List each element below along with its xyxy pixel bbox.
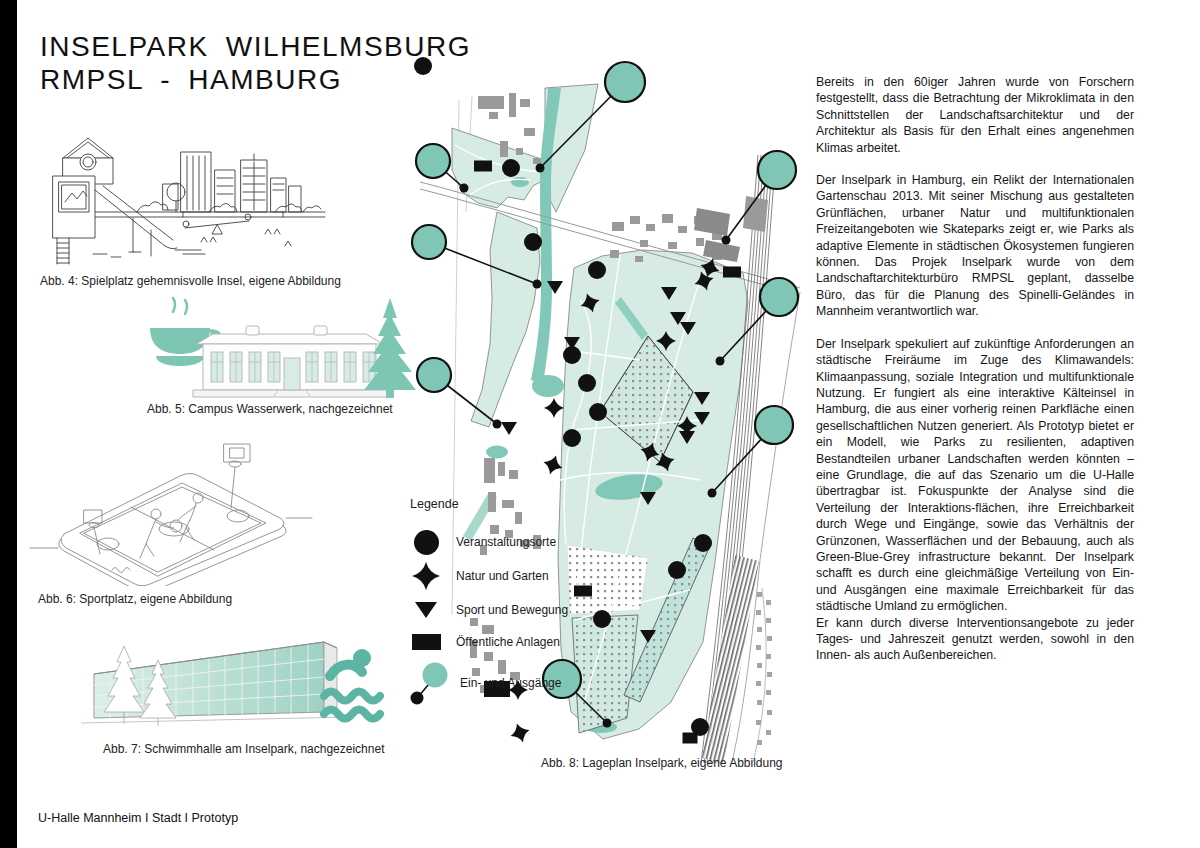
venue-marker [578,374,596,392]
entrance-marker [605,62,645,102]
entrance-marker [755,406,793,444]
basketball-court-drawing [28,436,313,586]
legend-label: Ein- und Ausgänge [460,676,561,690]
wasserwerk-drawing [118,292,418,400]
title-line-2: RMPSL - HAMBURG [40,64,342,95]
venue-marker [524,233,542,251]
legend-title: Legende [410,497,598,511]
public-square-icon [408,634,444,650]
venue-marker [588,261,606,279]
legend-label: Sport und Bewegung [456,603,568,617]
article-text: Bereits in den 60iger Jahren wurde von F… [816,74,1134,664]
venue-marker [502,159,520,177]
fig6-caption: Abb. 6: Sportplatz, eigene Abbildung [38,592,232,606]
page-title: INSELPARK WILHELMSBURGRMPSL - HAMBURG [40,30,471,96]
legend-item-veranstaltungsorte: Veranstaltungsorte [408,529,598,555]
venue-marker [563,429,581,447]
legend-label: Öffentliche Anlagen [456,635,560,649]
entrance-point [603,719,612,728]
fig7-caption: Abb. 7: Schwimmhalle am Inselpark, nachg… [103,742,384,756]
entrance-marker [412,225,446,259]
public-square-marker [474,161,492,172]
public-square-marker [683,733,698,744]
venue-marker [589,403,607,421]
map-legend: Legende Veranstaltungsorte Natur und Gar… [408,497,598,711]
venue-marker [668,561,686,579]
entrance-point [536,164,545,173]
venue-circle-icon [408,530,444,555]
fig-wasserwerk-illustration [118,292,418,400]
entrance-point [460,184,469,193]
fig-schwimmhalle-illustration [36,616,391,734]
fig4-caption: Abb. 4: Spielplatz gehemnisvolle Insel, … [40,274,341,288]
schwimmhalle-drawing [36,616,391,734]
paragraph-3: Der Inselpark spekuliert auf zukünftige … [816,336,1134,615]
legend-label: Natur und Garten [456,569,549,583]
entrance-marker [758,151,796,189]
left-edge-bar [0,0,17,848]
entrance-marker [416,144,450,178]
sport-triangle-marker [501,422,517,435]
entrance-point [533,280,542,289]
venue-marker [414,57,432,75]
footer-project-label: U-Halle Mannheim I Stadt I Prototyp [38,811,238,825]
fig-sportplatz-illustration [28,436,313,586]
legend-item-oeffentliche-anlagen: Öffentliche Anlagen [408,629,598,655]
legend-label: Veranstaltungsorte [456,535,556,549]
sport-triangle-icon [408,602,444,618]
fig-playground-illustration [33,126,333,268]
nature-star-marker [544,398,564,418]
fig5-caption: Abb. 5: Campus Wasserwerk, nachgezeichne… [147,402,393,416]
title-line-1: INSELPARK WILHELMSBURG [40,31,471,62]
public-square-marker [723,267,741,278]
legend-item-natur-und-garten: Natur und Garten [408,561,598,591]
paragraph-4: Er kann durch diverse Interventionsangeb… [816,615,1134,664]
entrance-point [493,420,502,429]
playground-drawing [33,126,333,268]
paragraph-2: Der Inselpark in Hamburg, ein Relikt der… [816,172,1134,320]
entrance-point [722,236,731,245]
nature-star-marker [507,720,532,745]
entrance-marker [417,358,451,392]
entrance-marker [760,278,798,316]
fig8-caption: Abb. 8: Lageplan Inselpark, eigene Abbil… [541,756,783,770]
nature-star-icon [408,561,444,591]
legend-item-ein-und-ausgaenge: Ein- und Ausgänge [408,661,598,705]
entrance-point [716,357,725,366]
venue-marker [694,534,712,552]
paragraph-1: Bereits in den 60iger Jahren wurde von F… [816,74,1134,156]
entrance-circle-icon [408,661,448,705]
entrance-point [708,489,717,498]
legend-item-sport-und-bewegung: Sport und Bewegung [408,597,598,623]
